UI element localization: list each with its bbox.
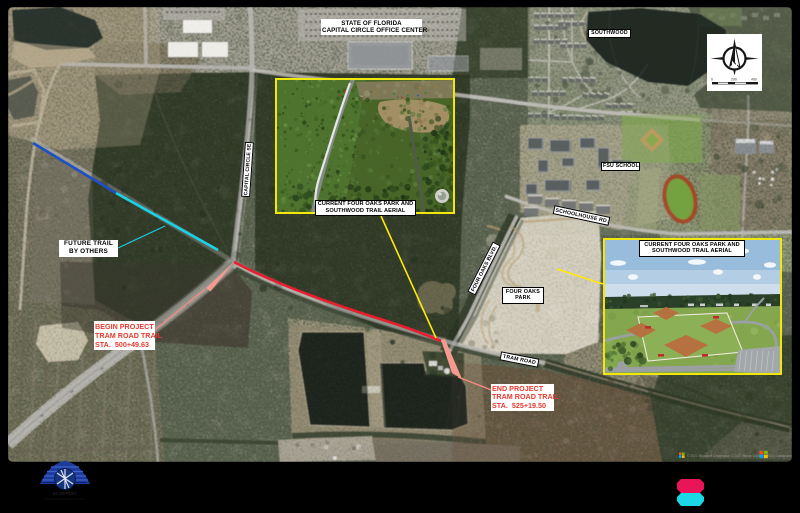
svg-text:BLUEPRINT: BLUEPRINT [53, 491, 78, 496]
svg-text:INTERGOVERNMENTAL AGENCY: INTERGOVERNMENTAL AGENCY [45, 497, 86, 501]
